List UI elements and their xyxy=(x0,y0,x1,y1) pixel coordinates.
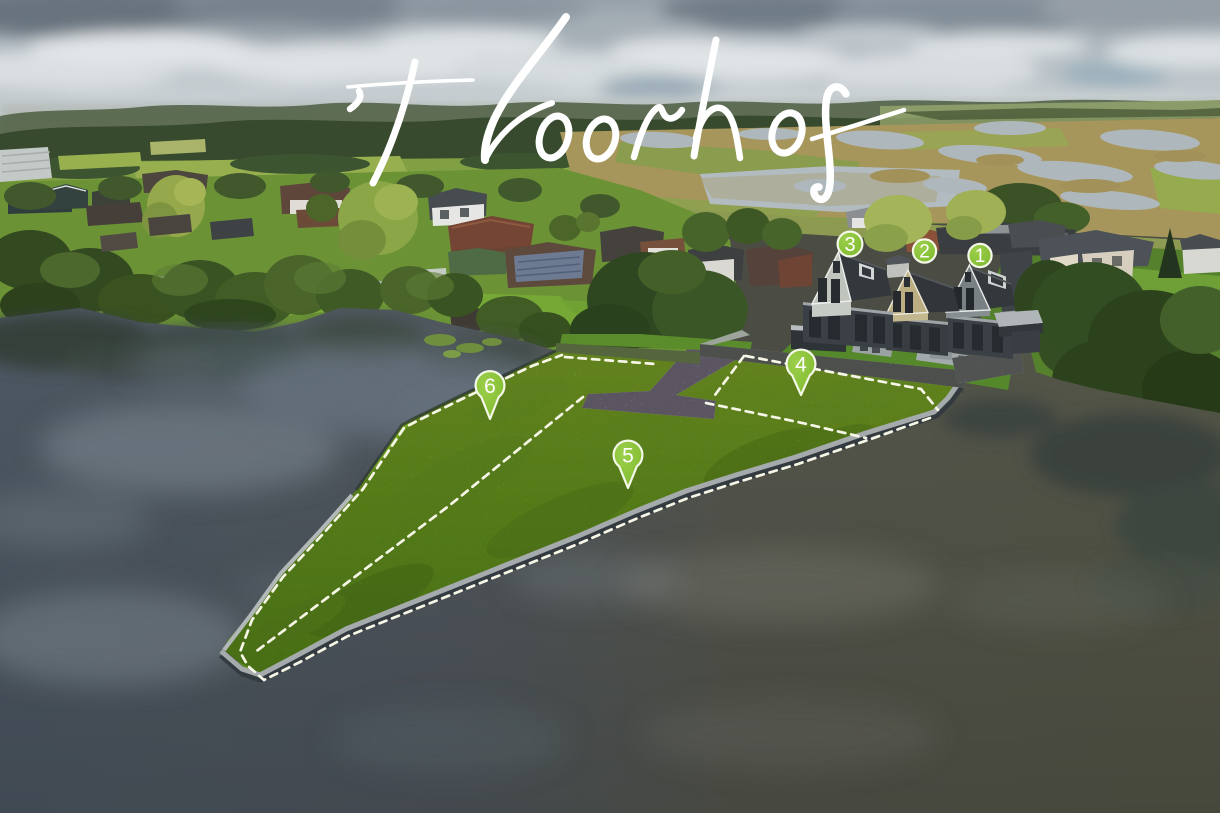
svg-text:4: 4 xyxy=(795,354,807,377)
svg-text:1: 1 xyxy=(975,246,986,267)
svg-text:2: 2 xyxy=(919,242,930,263)
svg-text:3: 3 xyxy=(844,234,855,256)
svg-text:6: 6 xyxy=(484,375,496,398)
svg-text:5: 5 xyxy=(622,445,634,468)
